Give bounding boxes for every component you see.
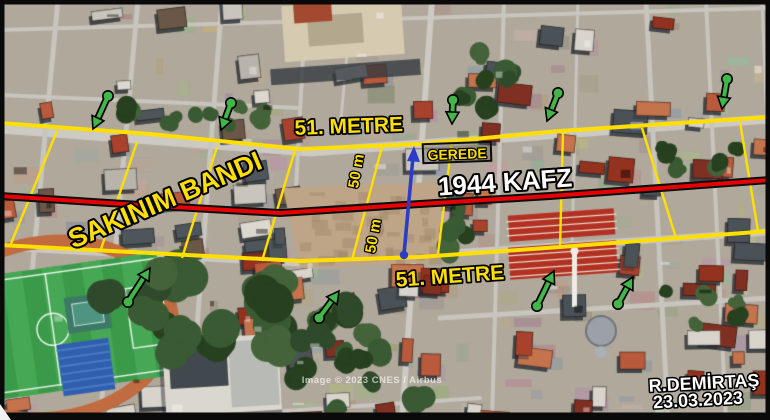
date-label: 23.03.2023 — [652, 388, 743, 413]
green-arrow-icon — [314, 291, 339, 323]
green-arrow-icon — [219, 98, 236, 130]
green-arrow-icon — [446, 95, 459, 124]
green-arrow-icon — [718, 74, 733, 109]
green-arrow-icon — [92, 91, 113, 129]
half-width-label-upper: 50 m — [345, 153, 368, 190]
green-arrow-icon — [613, 277, 633, 309]
annotated-satellite-map: 51. METRE SAKINIM BANDI 1944 KAFZ GEREDE… — [0, 0, 770, 420]
band-width-label-bottom: 51. METRE — [395, 261, 505, 292]
place-label: GEREDE — [427, 145, 487, 163]
green-arrow-icon — [545, 88, 563, 121]
imagery-credit: Image © 2023 CNES / Airbus — [302, 375, 443, 386]
green-arrow-icon — [532, 271, 555, 311]
green-arrow-icon — [123, 268, 150, 307]
annotation-overlay: 51. METRE SAKINIM BANDI 1944 KAFZ GEREDE… — [0, 0, 770, 420]
band-width-label-top: 51. METRE — [294, 113, 403, 140]
half-width-label-lower: 50 m — [362, 218, 385, 255]
